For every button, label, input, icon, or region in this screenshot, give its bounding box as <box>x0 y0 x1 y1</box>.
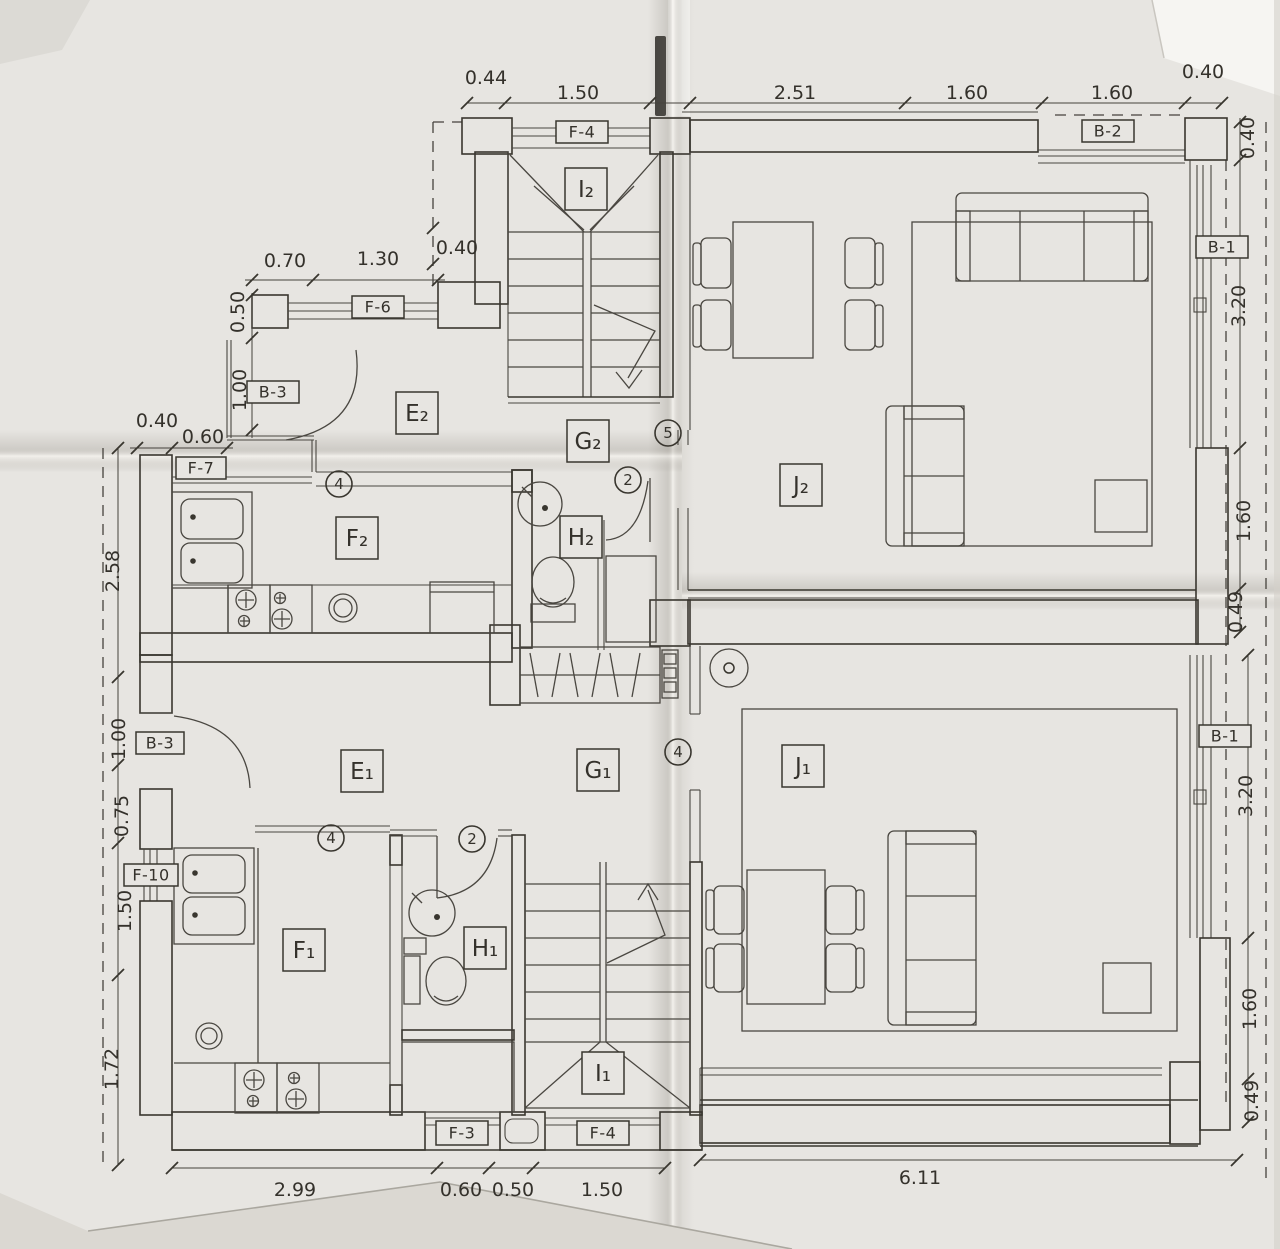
floor-plan-photo: 0.44 1.50 2.51 1.60 1.60 0.40 0.40 3.20 … <box>0 0 1280 1249</box>
room-label: F₁ <box>293 938 315 964</box>
dim-text: 3.20 <box>1235 775 1257 817</box>
room-label: I₁ <box>595 1061 611 1087</box>
dim-text: 1.50 <box>557 82 599 104</box>
room-label: E₁ <box>350 759 374 785</box>
dim-text: 0.49 <box>1241 1080 1263 1122</box>
room-label: H₁ <box>472 936 499 962</box>
code-label: B-1 <box>1208 238 1236 257</box>
dim-text: 6.11 <box>899 1167 941 1189</box>
code-label: F-4 <box>590 1124 617 1143</box>
dim-text: 0.44 <box>465 67 507 89</box>
code-label: F-3 <box>449 1124 476 1143</box>
room-label: G₁ <box>584 758 611 784</box>
dim-text: 2.99 <box>274 1179 316 1201</box>
dim-text: 3.20 <box>1228 285 1250 327</box>
dim-text: 1.60 <box>1239 988 1261 1030</box>
dim-text: 0.40 <box>136 410 178 432</box>
dim-text: 1.60 <box>1091 82 1133 104</box>
code-label: F-6 <box>365 298 392 317</box>
drain-dot <box>434 914 440 920</box>
dim-text: 2.51 <box>774 82 816 104</box>
room-label: J₂ <box>791 473 809 499</box>
dim-text: 1.60 <box>1233 500 1255 542</box>
code-label: B-3 <box>259 383 287 402</box>
circled-note: 4 <box>326 829 336 847</box>
room-label: F₂ <box>346 526 368 552</box>
dim-text: 1.72 <box>101 1048 123 1090</box>
dim-text: 1.50 <box>581 1179 623 1201</box>
dim-text: 0.60 <box>440 1179 482 1201</box>
code-label: B-2 <box>1094 122 1122 141</box>
dim-text: 0.40 <box>1182 61 1224 83</box>
vertical-fold <box>648 0 694 1249</box>
circled-note: 4 <box>673 743 683 761</box>
dim-text: 0.50 <box>227 291 249 333</box>
room-label: G₂ <box>574 429 601 455</box>
floor-plan-svg: 0.44 1.50 2.51 1.60 1.60 0.40 0.40 3.20 … <box>0 0 1280 1249</box>
circled-note: 4 <box>334 475 344 493</box>
dim-text: 1.00 <box>108 718 130 760</box>
dim-text: 0.40 <box>436 237 478 259</box>
dim-text: 0.60 <box>182 426 224 448</box>
dim-text: 0.50 <box>492 1179 534 1201</box>
dim-text: 0.49 <box>1225 591 1247 633</box>
room-label: H₂ <box>568 525 595 551</box>
dim-text: 1.30 <box>357 248 399 270</box>
drain-dot <box>542 505 548 511</box>
room-label: J₁ <box>793 754 811 780</box>
paper-edge-right <box>1274 0 1280 1249</box>
code-label: F-7 <box>188 459 215 478</box>
room-label: E₂ <box>405 401 429 427</box>
circled-note: 5 <box>663 424 673 442</box>
dim-text: 0.70 <box>264 250 306 272</box>
code-label: B-3 <box>146 734 174 753</box>
code-label: B-1 <box>1211 727 1239 746</box>
dim-text: 0.75 <box>111 795 133 837</box>
horizontal-fold-right <box>682 572 1280 610</box>
dim-text: 0.40 <box>1237 117 1259 159</box>
dim-text: 1.60 <box>946 82 988 104</box>
room-label: I₂ <box>578 177 594 203</box>
circled-note: 2 <box>623 471 633 489</box>
dim-text: 2.58 <box>102 550 124 592</box>
circled-note: 2 <box>467 830 477 848</box>
code-label: F-10 <box>132 866 169 885</box>
dim-text: 1.50 <box>114 890 136 932</box>
code-label: F-4 <box>569 123 596 142</box>
paper-background <box>0 0 1280 1249</box>
